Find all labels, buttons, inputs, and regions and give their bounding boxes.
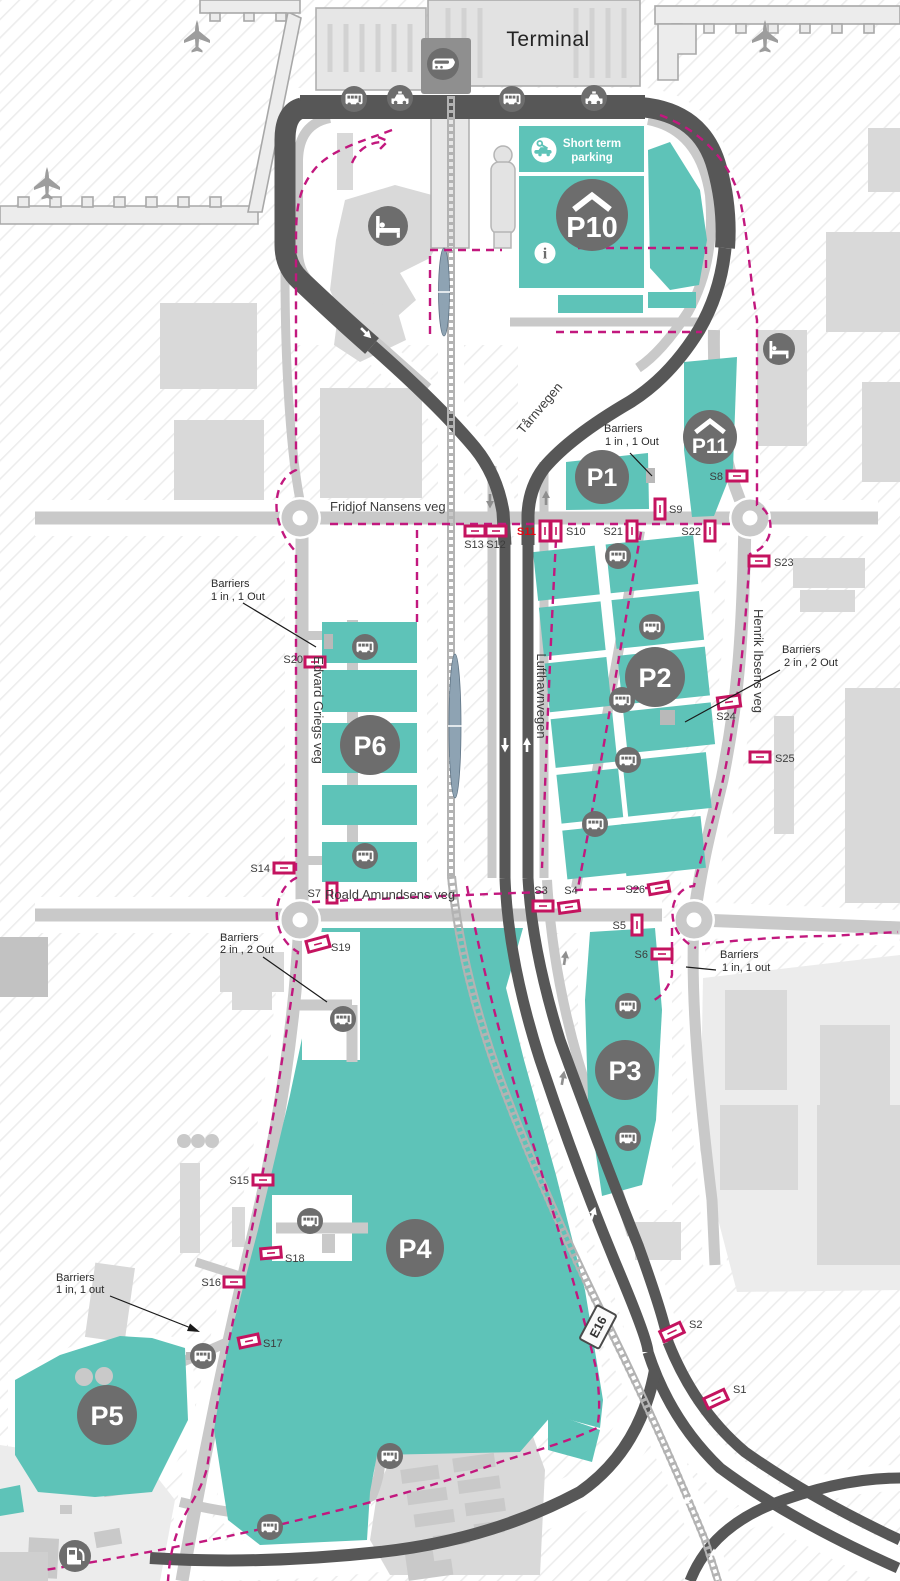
road-label-lufthavnvegen: Lufthavnvegen (534, 653, 549, 738)
bus-icon (499, 86, 525, 112)
road-label-henrik: Henrik Ibsens veg (751, 609, 766, 713)
airport-parking-map: S1 S2 S3 S4 S5 S6 S7 S8 S9 S10 S11 (0, 0, 900, 1581)
bus-icon (605, 543, 631, 569)
svg-text:S25: S25 (775, 753, 795, 765)
svg-text:Barriers: Barriers (782, 644, 821, 656)
svg-text:S16: S16 (201, 1277, 221, 1289)
svg-text:S17: S17 (263, 1338, 283, 1350)
bus-icon (582, 811, 608, 837)
svg-text:S8: S8 (710, 471, 723, 483)
svg-text:S26: S26 (625, 884, 645, 896)
barrier-gate (646, 468, 655, 483)
svg-text:S23: S23 (774, 557, 794, 569)
svg-text:S13: S13 (464, 539, 484, 551)
road-label-edvard: Edvard Griegs veg (311, 656, 326, 764)
svg-text:P3: P3 (608, 1056, 641, 1086)
bus-icon (377, 1443, 403, 1469)
svg-text:S9: S9 (669, 504, 682, 516)
svg-text:2 in , 2 Out: 2 in , 2 Out (220, 944, 274, 956)
bus-icon (639, 614, 665, 640)
parking-badge-p10: P10 (556, 179, 628, 251)
svg-text:S20: S20 (283, 654, 303, 666)
road-label-roald: Roald Amundsens veg (325, 887, 455, 902)
svg-text:S19: S19 (331, 942, 351, 954)
bus-icon (352, 843, 378, 869)
bus-icon (297, 1208, 323, 1234)
svg-text:S2: S2 (689, 1319, 702, 1331)
svg-text:S14: S14 (250, 863, 270, 875)
svg-text:S22: S22 (681, 526, 701, 538)
bus-icon (341, 86, 367, 112)
svg-text:S10: S10 (566, 526, 586, 538)
sensor-s12: S12 (486, 526, 506, 551)
svg-text:P5: P5 (90, 1401, 123, 1431)
svg-text:1 in, 1 out: 1 in, 1 out (56, 1284, 104, 1296)
roundabout (729, 497, 771, 539)
bus-icon (615, 1125, 641, 1151)
parking-badge-p5: P5 (77, 1385, 137, 1445)
svg-text:S12: S12 (486, 539, 506, 551)
terminal-label: Terminal (506, 28, 589, 51)
svg-text:Barriers: Barriers (56, 1272, 95, 1284)
sensor-s16: S16 (201, 1277, 244, 1289)
parking-badge-p11: P11 (683, 410, 737, 464)
taxi-icon (581, 85, 607, 111)
svg-text:2 in , 2 Out: 2 in , 2 Out (784, 657, 838, 669)
sensor-s13: S13 (464, 526, 485, 551)
bus-icon (257, 1514, 283, 1540)
svg-text:S24: S24 (716, 711, 736, 723)
parking-badge-p4: P4 (386, 1219, 444, 1277)
svg-text:S15: S15 (229, 1175, 249, 1187)
svg-text:S4: S4 (564, 885, 577, 897)
svg-text:parking: parking (571, 152, 613, 164)
parking-badge-p2: P2 (625, 647, 685, 707)
svg-text:1 in , 1 Out: 1 in , 1 Out (211, 591, 265, 603)
hotel-bed-icon (368, 206, 408, 246)
roundabout (279, 497, 321, 539)
svg-text:P11: P11 (692, 435, 729, 458)
svg-text:Barriers: Barriers (220, 932, 259, 944)
hotel-bed-icon (763, 333, 795, 365)
svg-text:S18: S18 (285, 1253, 305, 1265)
svg-text:P10: P10 (566, 212, 618, 244)
map-root: S1 S2 S3 S4 S5 S6 S7 S8 S9 S10 S11 (0, 0, 900, 1581)
svg-text:S21: S21 (603, 526, 623, 538)
car-key-icon (532, 138, 557, 163)
svg-text:P2: P2 (638, 663, 671, 693)
roundabout (279, 899, 321, 941)
road-label-fridjof: Fridjof Nansens veg (330, 499, 446, 514)
bus-icon (330, 1006, 356, 1032)
svg-text:i: i (543, 246, 548, 263)
bus-icon (190, 1343, 216, 1369)
svg-text:S7: S7 (308, 888, 321, 900)
bus-icon (615, 747, 641, 773)
parking-badge-p3: P3 (595, 1040, 655, 1100)
sensor-s8: S8 (710, 471, 747, 483)
svg-text:P1: P1 (587, 464, 618, 492)
svg-text:1 in , 1 Out: 1 in , 1 Out (605, 436, 659, 448)
svg-text:1 in, 1 out: 1 in, 1 out (722, 962, 770, 974)
svg-text:S11: S11 (517, 526, 536, 538)
train-icon (427, 48, 459, 80)
parking-area-small (0, 1485, 24, 1516)
svg-text:S3: S3 (534, 885, 547, 897)
svg-text:Short term: Short term (563, 138, 621, 150)
sensor-s6: S6 (635, 949, 672, 961)
svg-text:S5: S5 (613, 920, 626, 932)
barrier-gate (324, 634, 333, 649)
barrier-gate (660, 710, 675, 725)
svg-text:P4: P4 (398, 1234, 431, 1264)
fuel-pump-icon (59, 1540, 91, 1572)
svg-text:P6: P6 (353, 731, 386, 761)
info-icon: i (535, 243, 556, 264)
parking-badge-p1: P1 (575, 450, 629, 504)
svg-text:Barriers: Barriers (720, 949, 759, 961)
bus-icon (352, 634, 378, 660)
bus-icon (615, 993, 641, 1019)
taxi-icon (387, 85, 413, 111)
svg-text:Barriers: Barriers (604, 423, 643, 435)
svg-text:S6: S6 (635, 949, 648, 961)
svg-text:Barriers: Barriers (211, 578, 250, 590)
svg-text:S1: S1 (733, 1384, 746, 1396)
parking-badge-p6: P6 (340, 715, 400, 775)
